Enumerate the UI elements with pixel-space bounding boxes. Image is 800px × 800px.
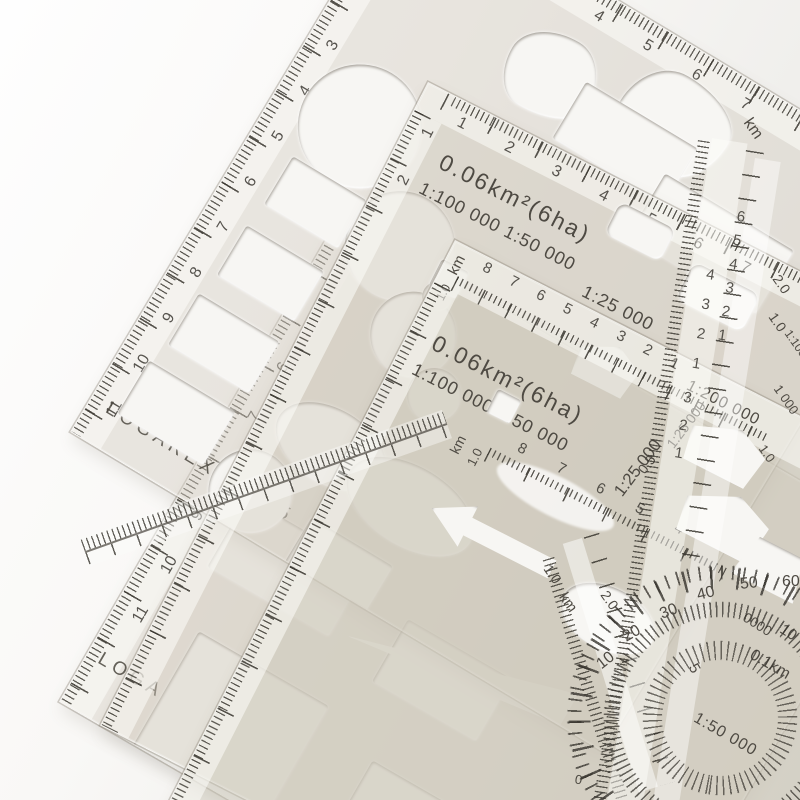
protractor-number: 60: [782, 573, 800, 591]
ruler-number: 3: [305, 23, 361, 67]
photo-drafting-templates: 67891011 LOGAREX-40315 4567 34567891011 …: [0, 0, 800, 800]
protractor: 10 20 30 40 50 60 5: [555, 540, 800, 800]
protractor-number: 50: [739, 574, 759, 594]
ruler-number: 8: [168, 250, 224, 294]
ruler-number: 3: [718, 274, 742, 301]
protractor-inner-ticks: [640, 638, 800, 798]
ruler-number: 6: [729, 203, 753, 230]
ruler-number: 4: [722, 250, 746, 277]
ruler-number: 5: [725, 227, 749, 254]
ruler-number: 1: [710, 322, 734, 349]
scale-start-mark: 1.0: [464, 446, 486, 469]
ruler-number: 2: [714, 298, 738, 325]
